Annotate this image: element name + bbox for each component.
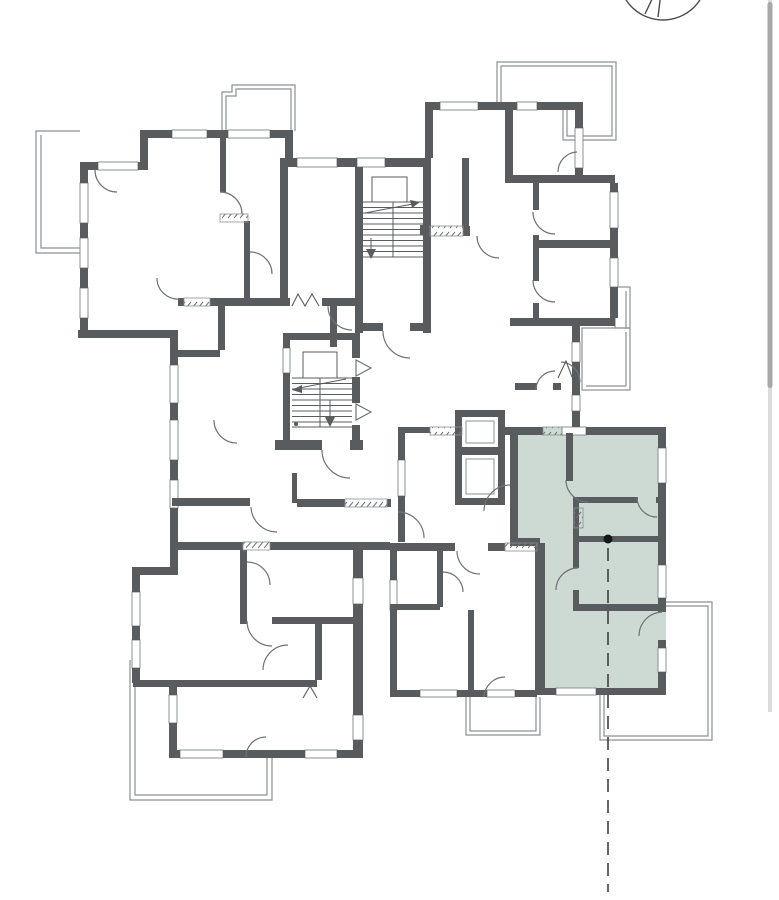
north-compass-icon (619, 0, 707, 20)
scrollbar-thumb[interactable] (768, 2, 773, 388)
floor-plan-canvas (0, 0, 779, 900)
floor-plan (0, 0, 779, 900)
highlighted-apartment-unit[interactable] (511, 427, 666, 695)
staircase-lower (292, 352, 352, 427)
unit-marker-dot (604, 535, 613, 544)
staircase-upper (363, 177, 423, 259)
